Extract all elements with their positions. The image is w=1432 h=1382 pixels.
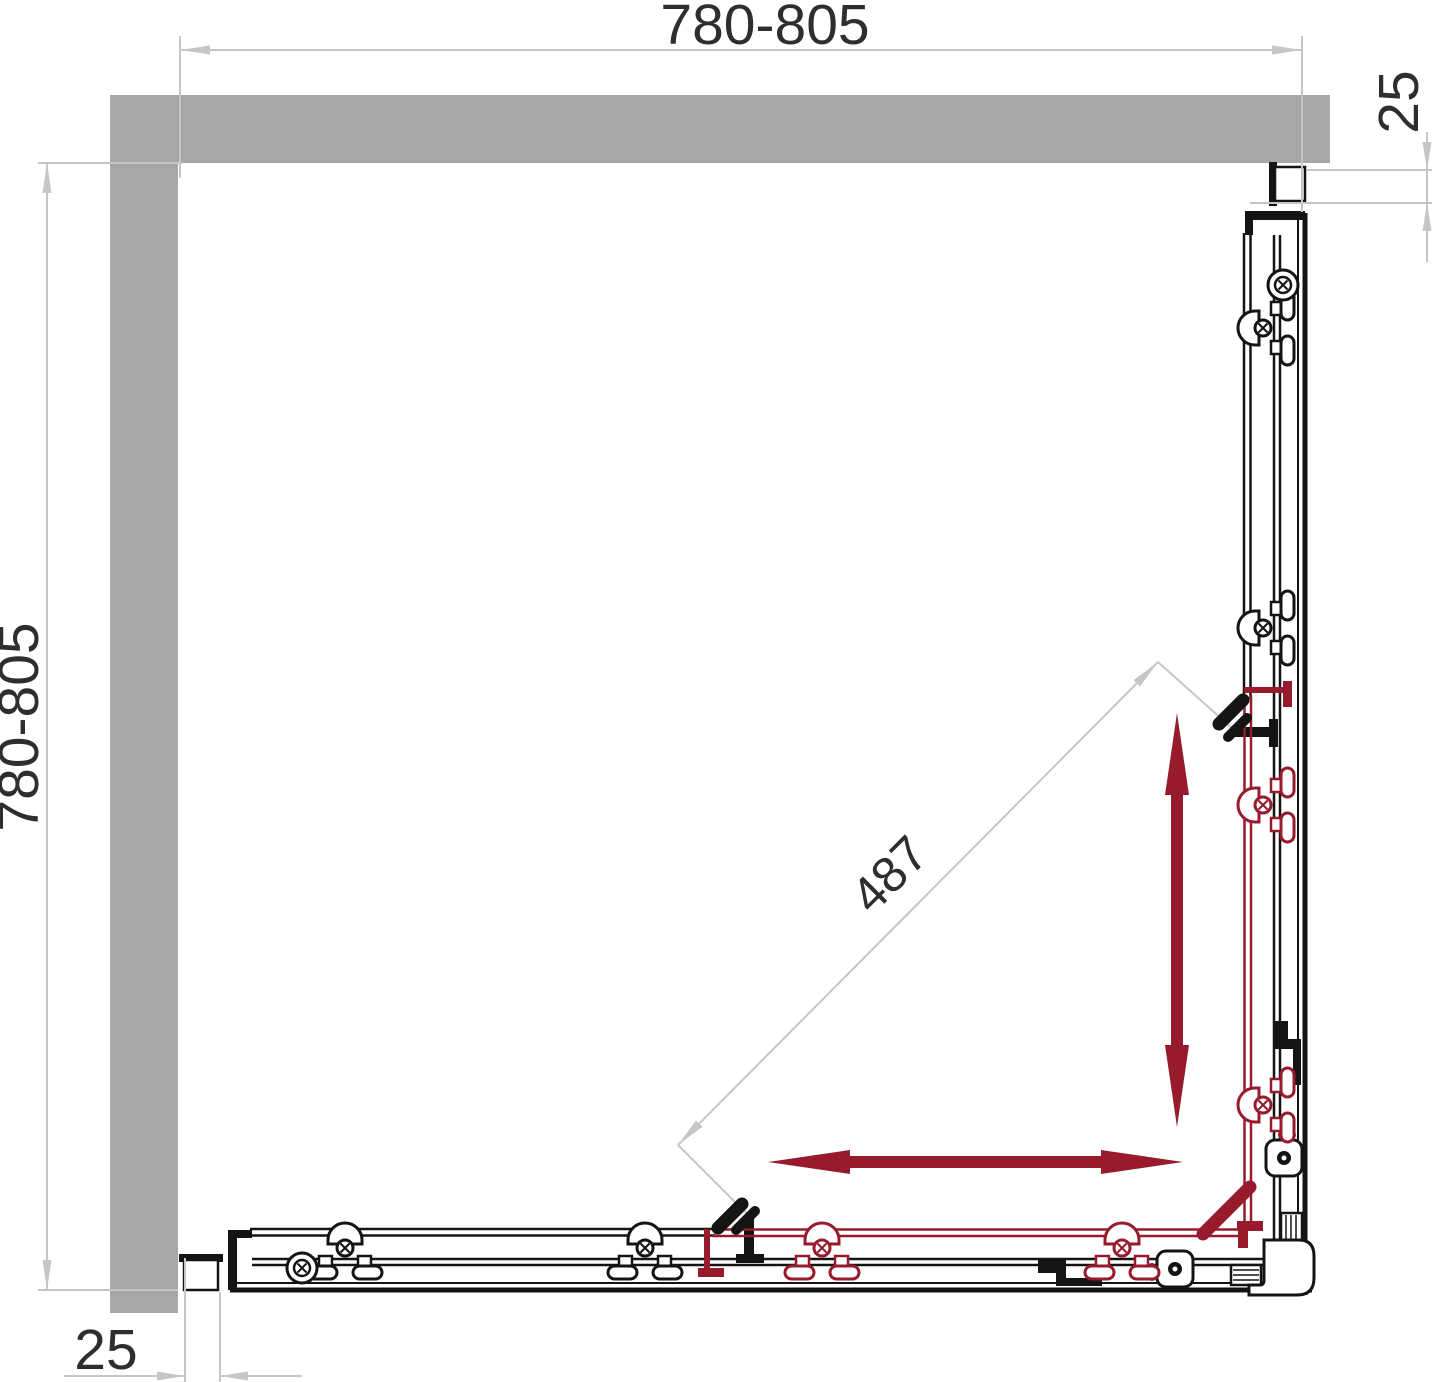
dim-arrow-down-icon (1423, 142, 1432, 170)
dim-arrow-left-icon (220, 1372, 248, 1381)
door-slide-horizontal-arrow (768, 1150, 1183, 1174)
right-offset-label: 25 (1367, 70, 1431, 133)
dim-arrow-right-icon (1272, 46, 1302, 55)
walls (110, 95, 1330, 1313)
door-slide-vertical-arrow (1165, 713, 1189, 1127)
bottom-door-assembly (179, 1217, 1312, 1290)
left-wall (110, 95, 178, 1313)
diagonal-opening-dimension: 487 (678, 662, 1234, 1217)
dim-arrow-ne-icon (1134, 662, 1158, 687)
top-width-label: 780-805 (660, 0, 869, 57)
left-depth-label: 780-805 (0, 622, 51, 831)
dim-arrow-up-icon (1423, 203, 1432, 231)
dim-arrow-right-icon (157, 1372, 185, 1381)
dim-arrow-up-icon (43, 163, 52, 193)
top-wall (110, 95, 1330, 163)
shower-enclosure-plan: 780-805 780-805 25 25 487 (0, 0, 1432, 1382)
diagram-canvas: 780-805 780-805 25 25 487 (0, 0, 1432, 1382)
bottom-offset-label: 25 (74, 1318, 137, 1382)
dim-arrow-left-icon (180, 46, 210, 55)
dim-arrow-down-icon (43, 1260, 52, 1290)
dim-arrow-sw-icon (678, 1121, 702, 1146)
red-door-handle-knob (1226, 1187, 1250, 1211)
diagonal-opening-label: 487 (840, 825, 939, 924)
